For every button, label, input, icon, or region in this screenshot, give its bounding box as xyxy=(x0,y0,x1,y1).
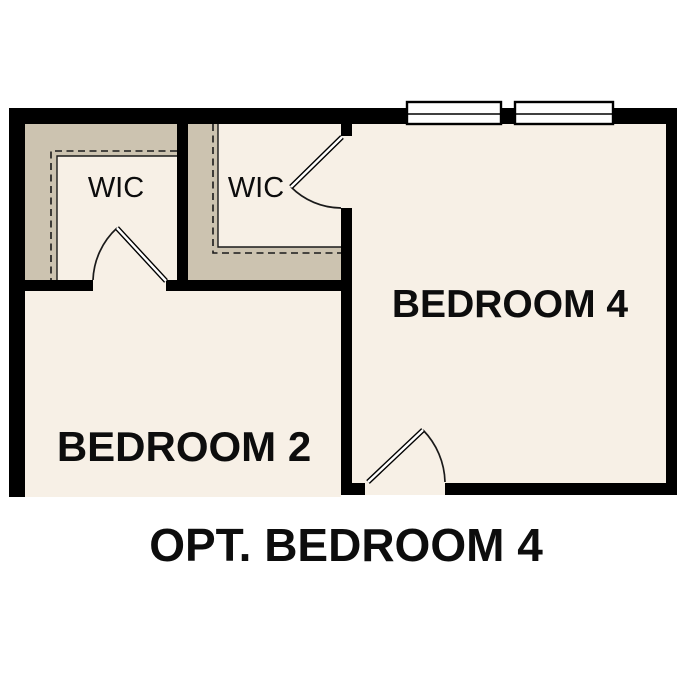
window-1 xyxy=(407,102,501,124)
plan-caption: OPT. BEDROOM 4 xyxy=(149,519,543,571)
right-exterior-wall xyxy=(666,108,677,495)
wic1-label: WIC xyxy=(88,172,144,204)
top-wall-left-segment xyxy=(9,108,407,124)
bedroom4-wall-top-stub xyxy=(341,124,352,136)
wic-bottom-wall-left xyxy=(9,280,93,291)
window-2-frame xyxy=(515,102,613,124)
wic2-doorway-floor xyxy=(341,136,352,208)
wic-bottom-wall-right xyxy=(166,280,352,291)
wic1-wic2-dividing-wall xyxy=(177,124,188,291)
bedroom2-label: BEDROOM 2 xyxy=(57,423,311,470)
left-exterior-wall xyxy=(9,108,25,497)
window-1-frame xyxy=(407,102,501,124)
bedroom4-doorway-floor xyxy=(365,483,445,495)
bottom-wall-right-segment xyxy=(445,483,677,495)
wic1-left-closet-wall xyxy=(25,124,57,280)
window-2 xyxy=(515,102,613,124)
wic2-label: WIC xyxy=(228,172,284,204)
wic2-bottom-closet-wall xyxy=(188,247,341,280)
floorplan-page: WIC WIC BEDROOM 4 BEDROOM 2 OPT. BEDROOM… xyxy=(0,0,687,687)
bedroom2-bedroom4-dividing-wall xyxy=(341,208,352,483)
bedroom4-label: BEDROOM 4 xyxy=(392,283,629,326)
wic1-doorway-floor xyxy=(93,280,166,291)
bottom-wall-left-jamb xyxy=(341,483,365,495)
floorplan-drawing: WIC WIC BEDROOM 4 BEDROOM 2 OPT. BEDROOM… xyxy=(0,0,687,687)
top-wall-between-windows xyxy=(501,108,515,124)
